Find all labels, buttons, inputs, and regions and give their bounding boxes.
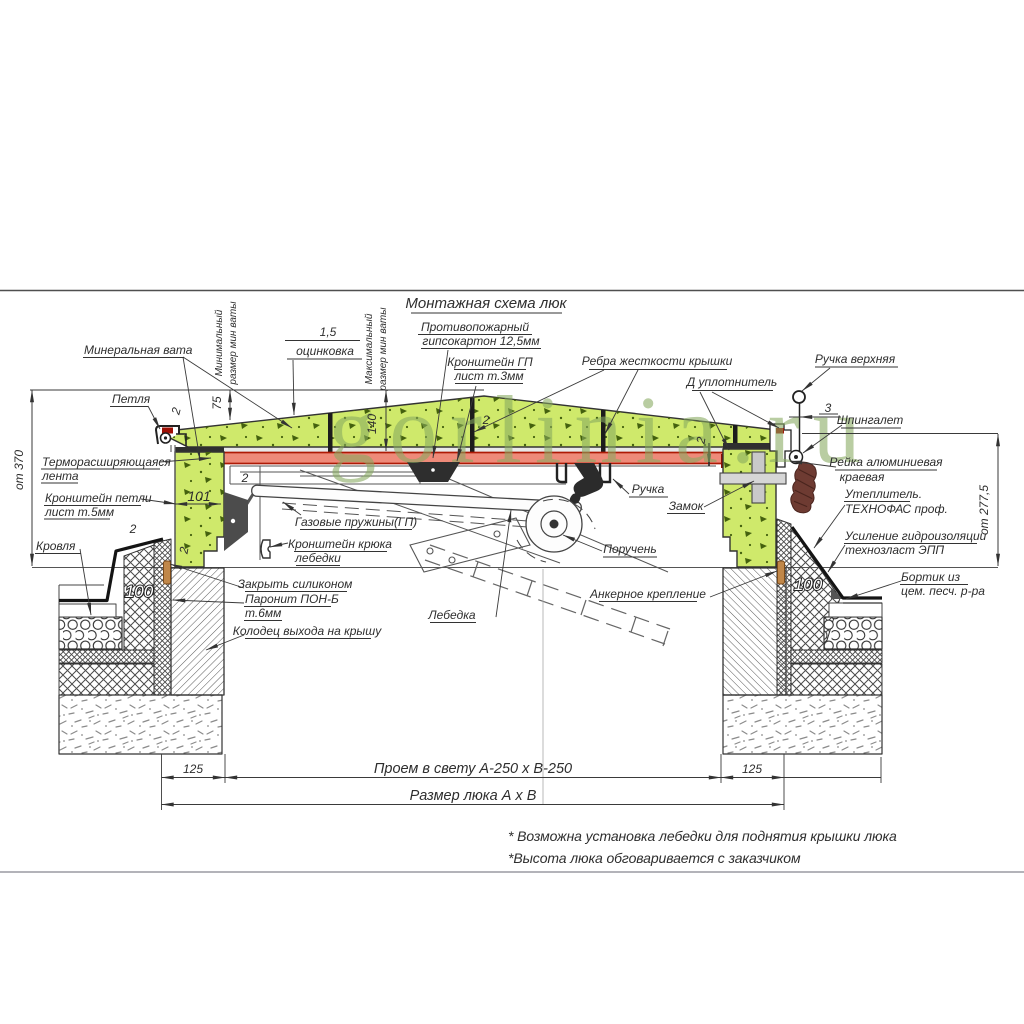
svg-text:лист т.3мм: лист т.3мм: [453, 369, 523, 383]
svg-text:Шпингалет: Шпингалет: [837, 413, 904, 427]
svg-text:Газовые пружины(ГП): Газовые пружины(ГП): [295, 515, 417, 529]
svg-text:ТЕХНОФАС проф.: ТЕХНОФАС проф.: [845, 502, 948, 516]
svg-text:125: 125: [742, 762, 762, 776]
svg-text:2: 2: [241, 471, 249, 485]
svg-text:Усиление гидроизоляции: Усиление гидроизоляции: [844, 529, 987, 543]
svg-text:1,5: 1,5: [320, 325, 337, 339]
svg-text:Монтажная схема люк: Монтажная схема люк: [405, 295, 567, 312]
svg-text:Максимальный: Максимальный: [364, 313, 375, 384]
svg-text:лист т.5мм: лист т.5мм: [44, 505, 114, 519]
svg-text:Ребра жесткости крышки: Ребра жесткости крышки: [582, 354, 733, 368]
svg-text:75: 75: [210, 396, 224, 410]
svg-text:100: 100: [125, 582, 154, 601]
svg-text:100: 100: [794, 575, 823, 594]
svg-text:цем. песч. р-ра: цем. песч. р-ра: [901, 584, 985, 598]
svg-text:технозласт ЭПП: технозласт ЭПП: [845, 543, 944, 557]
svg-text:Д уплотнитель: Д уплотнитель: [685, 375, 777, 389]
svg-text:Кронштейн петли: Кронштейн петли: [45, 491, 152, 505]
svg-text:Петля: Петля: [112, 392, 151, 406]
svg-text:Бортик из: Бортик из: [901, 570, 961, 584]
svg-text:гипсокартон 12,5мм: гипсокартон 12,5мм: [422, 334, 539, 348]
svg-text:* Возможна установка лебедки д: * Возможна установка лебедки для подняти…: [508, 828, 897, 844]
svg-text:2: 2: [129, 522, 137, 536]
svg-text:Ручка верхняя: Ручка верхняя: [815, 352, 896, 366]
svg-text:Проем в свету А-250 х В-250: Проем в свету А-250 х В-250: [374, 761, 572, 777]
svg-text:Замок: Замок: [669, 499, 705, 513]
svg-text:Колодец выхода на крышу: Колодец выхода на крышу: [233, 624, 382, 638]
svg-text:Рейка алюминиевая: Рейка алюминиевая: [829, 455, 943, 469]
svg-text:от 277,5: от 277,5: [977, 485, 991, 535]
svg-text:размер мин ваты: размер мин ваты: [228, 301, 239, 386]
svg-text:*Высота люка обговаривается с: *Высота люка обговаривается с заказчиком: [508, 850, 801, 866]
svg-text:от 370: от 370: [12, 450, 26, 490]
svg-text:2: 2: [482, 413, 490, 427]
svg-text:Кронштейн ГП: Кронштейн ГП: [447, 355, 533, 369]
svg-text:краевая: краевая: [840, 470, 885, 484]
svg-text:оцинковка: оцинковка: [296, 344, 354, 358]
svg-text:101: 101: [187, 488, 210, 504]
svg-text:Паронит ПОН-Б: Паронит ПОН-Б: [245, 592, 339, 606]
svg-text:лента: лента: [41, 469, 79, 483]
svg-text:Закрыть силиконом: Закрыть силиконом: [238, 577, 353, 591]
svg-text:125: 125: [183, 762, 203, 776]
svg-text:3: 3: [825, 401, 832, 415]
svg-text:Поручень: Поручень: [603, 542, 656, 556]
svg-text:Кровля: Кровля: [36, 539, 76, 553]
svg-text:лебедки: лебедки: [294, 551, 341, 565]
svg-text:gorlinia.ru: gorlinia.ru: [328, 376, 874, 483]
svg-text:Утеплитель.: Утеплитель.: [844, 487, 922, 501]
svg-text:Противопожарный: Противопожарный: [421, 320, 529, 334]
svg-text:Лебедка: Лебедка: [427, 608, 475, 622]
svg-text:140: 140: [365, 414, 379, 434]
svg-text:Кронштейн крюка: Кронштейн крюка: [288, 537, 392, 551]
svg-text:размер мин ваты: размер мин ваты: [378, 307, 389, 392]
svg-text:Минимальный: Минимальный: [214, 309, 225, 376]
svg-text:Размер люка А х В: Размер люка А х В: [410, 788, 537, 804]
svg-text:т.6мм: т.6мм: [245, 606, 281, 620]
svg-text:Ручка: Ручка: [632, 482, 665, 496]
svg-text:Терморасширяющаяся: Терморасширяющаяся: [42, 455, 171, 469]
svg-text:Минеральная вата: Минеральная вата: [84, 343, 193, 357]
svg-text:Анкерное крепление: Анкерное крепление: [589, 587, 706, 601]
